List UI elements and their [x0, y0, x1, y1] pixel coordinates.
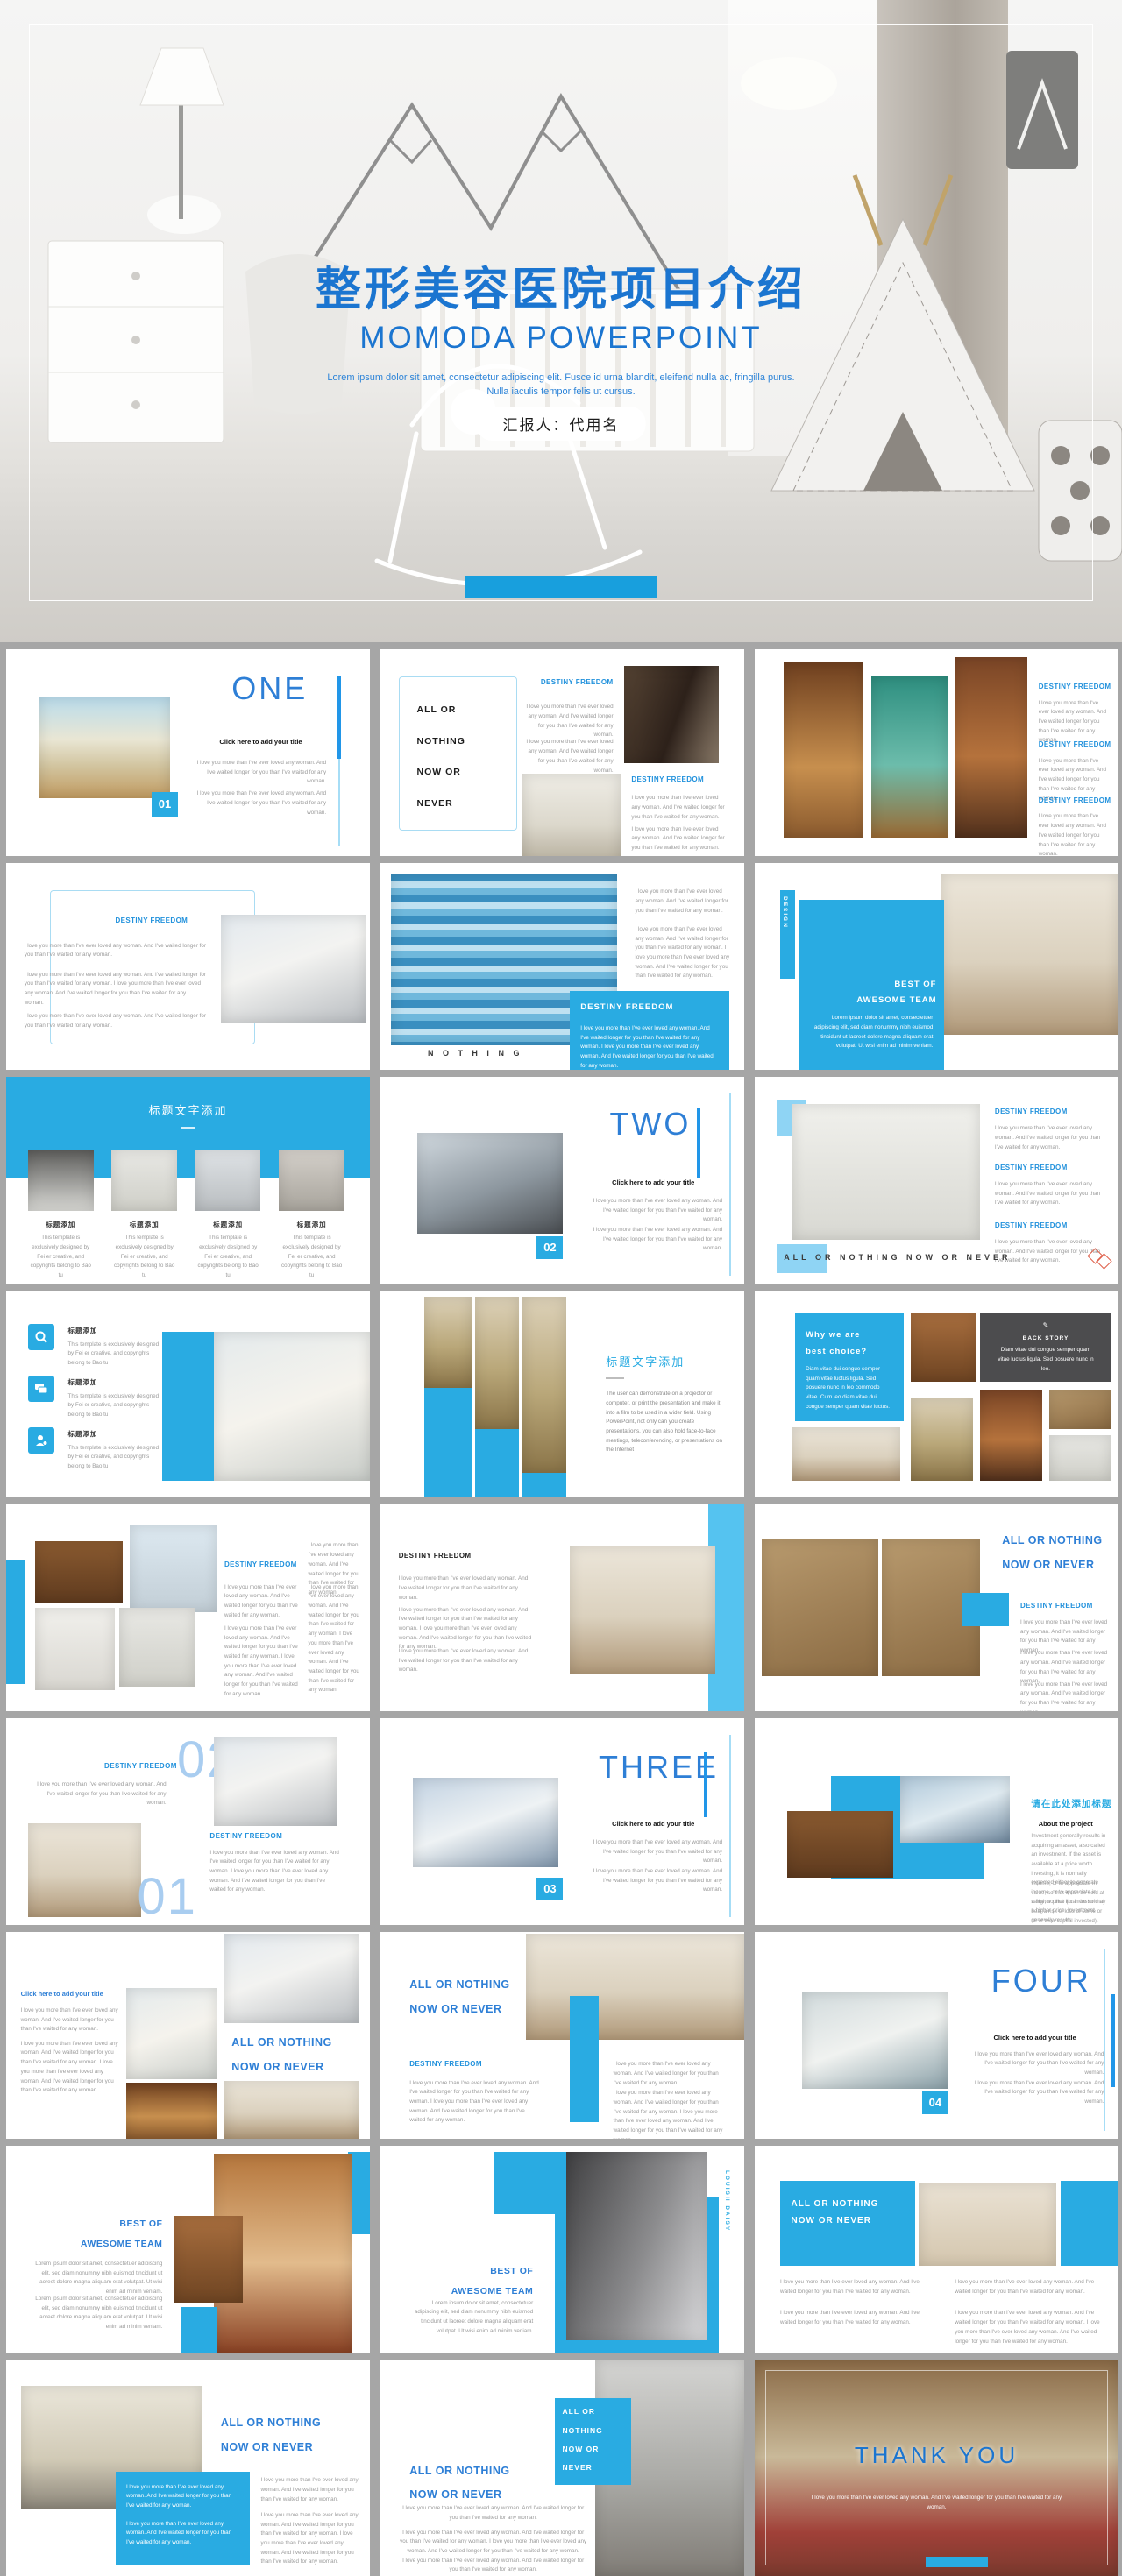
big-number: 01	[137, 1867, 197, 1925]
number-badge: 02	[536, 1236, 563, 1259]
body-text: I love you more than I've ever loved any…	[209, 1849, 340, 1896]
photo	[224, 2081, 359, 2139]
slide-24[interactable]: ALL OR NOTHINGNOW OR NEVER I love you mo…	[755, 2146, 1118, 2353]
body-text: I love you more than I've ever loved any…	[399, 1647, 537, 1675]
photo	[221, 915, 366, 1023]
photo	[126, 1988, 217, 2079]
body-text: I love you more than I've ever loved any…	[25, 942, 207, 960]
body-text: Income, or to appreciate in value, so th…	[1031, 1879, 1107, 1925]
tile-text: Diam vitae dui congue semper quam vitae …	[996, 1346, 1096, 1374]
slogan-line: ALL OR NOTHING	[231, 2036, 331, 2049]
slide-05[interactable]: I love you more than I've ever loved any…	[380, 863, 744, 1070]
photo	[214, 1332, 370, 1481]
vertical-text: DESIGN	[782, 896, 788, 929]
slide-17[interactable]: 03 THREE Click here to add your title I …	[380, 1718, 744, 1925]
slide-11[interactable]: 标题文字添加 The user can demonstrate on a pro…	[380, 1291, 744, 1497]
body-text: I love you more than I've ever loved any…	[399, 2529, 588, 2557]
heading-line: best choice?	[806, 1347, 867, 1356]
heading: DESTINY FREEDOM	[631, 775, 704, 783]
body-text: I love you more than I've ever loved any…	[399, 2557, 588, 2575]
photo	[792, 1104, 981, 1241]
body-text: I love you more than I've ever loved any…	[261, 2476, 359, 2504]
item-title: 标题添加	[68, 1377, 98, 1387]
photo	[279, 1150, 344, 1212]
photo	[35, 1608, 115, 1690]
slide-03[interactable]: DESTINY FREEDOM I love you more than I'v…	[755, 649, 1118, 856]
photo	[424, 1297, 472, 1388]
accent-rect	[962, 1593, 1010, 1626]
back-story-tile: ✎ BACK STORY Diam vitae dui congue sempe…	[980, 1313, 1111, 1382]
slogan-line: ALL OR NOTHING	[221, 2417, 321, 2429]
body-text: I love you more than I've ever loved any…	[614, 2060, 727, 2088]
body-text: I love you more than I've ever loved any…	[631, 794, 726, 822]
slide-22[interactable]: BEST OFAWESOME TEAM Lorem ipsum dolor si…	[6, 2146, 370, 2353]
slogan: ALL OR NOTHINGNOW OR NEVER	[231, 2031, 331, 2079]
presenter-label: 汇报人：代用名	[477, 407, 646, 441]
body-text: I love you more than I've ever loved any…	[32, 1780, 167, 1808]
photo	[126, 2083, 217, 2139]
photo	[900, 1776, 1010, 1843]
heading: BEST OFAWESOME TEAM	[43, 2214, 163, 2254]
item-text: This template is exclusively designed by…	[68, 1392, 160, 1420]
photo	[39, 697, 169, 798]
slogan-line: NOTHING	[417, 736, 465, 747]
accent-line	[729, 1735, 731, 1917]
thank-you-title: THANK YOU	[755, 2442, 1118, 2469]
slogan-line: NOW OR NEVER	[409, 2488, 501, 2501]
body-text: I love you more than I've ever loved any…	[409, 2079, 540, 2127]
photo	[787, 1811, 892, 1878]
heading-line: AWESOME TEAM	[856, 995, 936, 1005]
panel-heading: BEST OFAWESOME TEAM	[806, 977, 936, 1008]
photo	[526, 1934, 744, 2039]
item-text: This template is exclusively designed by…	[68, 1444, 160, 1472]
heading-line: BEST OF	[119, 2219, 162, 2229]
photo	[624, 666, 719, 763]
accent-line	[729, 1093, 731, 1276]
accent-rect	[424, 1388, 472, 1497]
slide-10[interactable]: 标题添加 This template is exclusively design…	[6, 1291, 370, 1497]
tile-heading: BACK STORY	[980, 1335, 1111, 1341]
body-text: I love you more than I've ever loved any…	[21, 2040, 123, 2096]
accent-bar	[704, 1752, 707, 1818]
heading-line: BEST OF	[894, 980, 936, 989]
body-text: Lorem ipsum dolor sit amet, consectetuer…	[409, 2299, 533, 2337]
accent-bar	[337, 676, 341, 759]
accent-rect	[522, 1473, 566, 1497]
photo	[195, 1150, 261, 1212]
photo	[28, 1150, 94, 1212]
slogan-spaced: ALL OR NOTHING NOW OR NEVER	[784, 1253, 1011, 1262]
heading-line: AWESOME TEAM	[81, 2239, 163, 2249]
slogan-line: NOW OR	[563, 2445, 600, 2453]
body-text: I love you more than I've ever loved any…	[224, 1624, 301, 1700]
accent-line	[338, 759, 340, 846]
item-title: 标题添加	[68, 1429, 98, 1439]
body-text: Lorem ipsum dolor sit amet, consectetuer…	[32, 2295, 162, 2332]
slide-14[interactable]: DESTINY FREEDOM I love you more than I'v…	[380, 1504, 744, 1711]
cover-slide[interactable]: 整形美容医院项目介绍 MOMODA POWERPOINT Lorem ipsum…	[0, 0, 1122, 642]
body-text: I love you more than I've ever loved any…	[636, 925, 730, 981]
caption-text: This template is exclusively designed by…	[279, 1234, 344, 1281]
photo	[35, 1541, 123, 1603]
slide-title: Click here to add your title	[580, 1178, 726, 1186]
body-text: I love you more than I've ever loved any…	[1020, 1681, 1108, 1711]
photo	[111, 1150, 177, 1212]
heading: DESTINY FREEDOM	[1039, 683, 1111, 690]
slide-title: Click here to add your title	[21, 1990, 103, 1998]
slogan-line: ALL OR	[563, 2407, 595, 2416]
accent-bar	[926, 2557, 988, 2567]
heading-line: NOW OR NEVER	[792, 2216, 871, 2226]
title-dash	[181, 1127, 195, 1129]
slide-15[interactable]: ALL OR NOTHINGNOW OR NEVER DESTINY FREED…	[755, 1504, 1118, 1711]
accent-bar	[1111, 1994, 1115, 2087]
body-text: I love you more than I've ever loved any…	[584, 1867, 722, 1895]
heading: DESTINY FREEDOM	[995, 1108, 1068, 1115]
caption-title: 标题添加	[195, 1220, 261, 1229]
photo	[941, 874, 1118, 1035]
hero-description: Lorem ipsum dolor sit amet, consectetur …	[316, 372, 806, 400]
photo	[762, 1539, 878, 1676]
accent-bar	[697, 1108, 700, 1178]
body-text: I love you more than I've ever loved any…	[188, 789, 327, 817]
slide-08[interactable]: 02 TWO Click here to add your title I lo…	[380, 1077, 744, 1284]
accent-rect	[162, 1332, 217, 1481]
title-dash	[606, 1377, 624, 1379]
body-text: I love you more than I've ever loved any…	[399, 2504, 588, 2523]
body-text: I love you more than I've ever loved any…	[584, 1226, 722, 1254]
photo	[784, 662, 863, 838]
thank-you-text: I love you more than I've ever loved any…	[806, 2494, 1068, 2512]
sub-heading: About the project	[1039, 1820, 1093, 1828]
body-text: I love you more than I've ever loved any…	[631, 825, 726, 853]
slide-19[interactable]: Click here to add your title I love you …	[6, 1932, 370, 2139]
body-text: I love you more than I've ever loved any…	[399, 1606, 537, 1653]
body-text: I love you more than I've ever loved any…	[995, 1124, 1104, 1152]
heading: DESTINY FREEDOM	[1039, 740, 1111, 748]
slide-title: 标题文字添加	[606, 1353, 685, 1369]
heading: DESTINY FREEDOM	[224, 1560, 297, 1568]
photo	[130, 1525, 217, 1612]
photo	[413, 1778, 558, 1866]
panel-heading: Why we arebest choice?	[806, 1327, 867, 1359]
section-number: FOUR	[991, 1963, 1091, 1999]
slide-18[interactable]: 请在此处添加标题 About the project Investment ge…	[755, 1718, 1118, 1925]
photo	[955, 657, 1027, 837]
hero-subtitle: MOMODA POWERPOINT	[0, 321, 1122, 356]
overlay-heading: DESTINY FREEDOM	[580, 1000, 673, 1016]
slogan-line: NOW OR NEVER	[231, 2061, 323, 2073]
heading: DESTINY FREEDOM	[533, 678, 613, 686]
slogan-line: ALL OR NOTHING	[409, 2465, 509, 2477]
slide-25[interactable]: ALL OR NOTHINGNOW OR NEVER I love you mo…	[6, 2360, 370, 2576]
photo	[919, 2183, 1057, 2265]
body-text: The user can demonstrate on a projector …	[606, 1390, 729, 1455]
body-text: I love you more than I've ever loved any…	[526, 703, 614, 740]
photo	[566, 2152, 708, 2340]
slide-09[interactable]: DESTINY FREEDOM I love you more than I'v…	[755, 1077, 1118, 1284]
slide-02[interactable]: ALL ORNOTHINGNOW ORNEVER DESTINY FREEDOM…	[380, 649, 744, 856]
slide-26[interactable]: ALL ORNOTHINGNOW ORNEVER ALL OR NOTHINGN…	[380, 2360, 744, 2576]
photo	[522, 1297, 566, 1473]
body-text: I love you more than I've ever loved any…	[780, 2278, 933, 2296]
body-text: I love you more than I've ever loved any…	[526, 738, 614, 775]
vertical-text: LOUISH DAISY	[724, 2170, 730, 2232]
slogan-line: NOW OR NEVER	[221, 2441, 313, 2453]
slide-12[interactable]: Why we arebest choice? Diam vitae dui co…	[755, 1291, 1118, 1497]
section-number: ONE	[231, 670, 308, 707]
slogan: ALL OR NOTHINGNOW OR NEVER	[1002, 1529, 1102, 1577]
number-badge: 01	[152, 792, 178, 817]
slogan-line: NOTHING	[563, 2426, 603, 2435]
heading-line: ALL OR NOTHING	[792, 2199, 879, 2209]
body-text: I love you more than I've ever loved any…	[995, 1238, 1104, 1266]
slide-13[interactable]: DESTINY FREEDOM I love you more than I'v…	[6, 1504, 370, 1711]
accent-line	[1104, 1949, 1105, 2131]
photo	[214, 1737, 337, 1825]
search-icon	[28, 1324, 54, 1350]
slogan-line: NOW OR NEVER	[409, 2003, 501, 2015]
body-text: I love you more than I've ever loved any…	[1039, 812, 1108, 856]
caption-title: 标题添加	[111, 1220, 177, 1229]
slogan-stacked: ALL ORNOTHINGNOW ORNEVER	[417, 695, 465, 820]
number-badge: 04	[922, 2091, 948, 2114]
heading: DESTINY FREEDOM	[104, 1762, 177, 1770]
slide-04[interactable]: DESTINY FREEDOM I love you more than I'v…	[6, 863, 370, 1070]
heading: DESTINY FREEDOM	[116, 916, 188, 924]
accent-rect	[1061, 2181, 1118, 2266]
photo	[522, 774, 621, 856]
photo	[570, 1546, 715, 1674]
slogan-line: NEVER	[563, 2463, 593, 2472]
overlay-slogan: ALL ORNOTHINGNOW ORNEVER	[563, 2403, 603, 2477]
heading: DESTINY FREEDOM	[995, 1164, 1068, 1171]
slogan-line: ALL OR	[417, 704, 457, 715]
slide-16[interactable]: 02 DESTINY FREEDOM I love you more than …	[6, 1718, 370, 1925]
body-text: I love you more than I've ever loved any…	[1039, 699, 1108, 747]
slogan: ALL OR NOTHINGNOW OR NEVER	[409, 2459, 509, 2508]
caption-text: This template is exclusively designed by…	[195, 1234, 261, 1281]
slide-title: Click here to add your title	[188, 738, 334, 746]
body-text: I love you more than I've ever loved any…	[188, 759, 327, 787]
photo	[1049, 1390, 1111, 1429]
photo	[802, 1992, 948, 2089]
heading: BEST OFAWESOME TEAM	[417, 2261, 534, 2302]
photo	[911, 1398, 973, 1481]
slide-title: 标题文字添加	[6, 1101, 370, 1118]
photo	[224, 1934, 359, 2022]
caption-title: 标题添加	[279, 1220, 344, 1229]
accent-rect	[570, 1996, 599, 2122]
photo	[980, 1390, 1042, 1481]
photo	[871, 676, 948, 838]
chat-icon	[28, 1376, 54, 1402]
heading-line: AWESOME TEAM	[451, 2286, 534, 2296]
slogan-line: NOW OR NEVER	[1002, 1559, 1094, 1571]
photo	[28, 1823, 141, 1916]
body-text: I love you more than I've ever loved any…	[224, 1583, 301, 1621]
accent-strip	[6, 1560, 25, 1685]
body-text: I love you more than I've ever loved any…	[995, 1180, 1104, 1208]
caption-text: This template is exclusively designed by…	[28, 1234, 94, 1281]
heading: DESTINY FREEDOM	[1039, 796, 1111, 804]
hero-accent-bar	[465, 576, 657, 598]
slogan-line: ALL OR NOTHING	[409, 1978, 509, 1991]
overlay-text: I love you more than I've ever loved any…	[126, 2483, 239, 2511]
body-text: I love you more than I've ever loved any…	[21, 2006, 123, 2035]
slogan-line: NOW OR	[417, 767, 461, 777]
slide-title: Click here to add your title	[580, 1820, 726, 1828]
item-title: 标题添加	[68, 1326, 98, 1335]
slide-06[interactable]: DESIGN BEST OFAWESOME TEAM Lorem ipsum d…	[755, 863, 1118, 1070]
body-text: I love you more than I've ever loved any…	[261, 2511, 359, 2567]
overlay-text: I love you more than I've ever loved any…	[580, 1024, 719, 1070]
section-number: THREE	[599, 1749, 719, 1786]
accent-rect	[181, 2307, 217, 2353]
section-number: TWO	[609, 1106, 691, 1143]
photo	[475, 1297, 519, 1429]
body-text: I love you more than I've ever loved any…	[584, 1197, 722, 1225]
heading-line: Why we are	[806, 1330, 860, 1340]
panel-text: Diam vitae dui congue semper quam vitae …	[806, 1365, 893, 1412]
slide-07[interactable]: 标题文字添加 标题添加 标题添加 标题添加 标题添加 This template…	[6, 1077, 370, 1284]
slogan: ALL OR NOTHINGNOW OR NEVER	[409, 1973, 509, 2021]
body-text: I love you more than I've ever loved any…	[308, 1583, 362, 1695]
body-text: Lorem ipsum dolor sit amet, consectetuer…	[32, 2260, 162, 2297]
photo	[792, 1427, 901, 1481]
slogan-spaced: N O T H I N G	[428, 1049, 523, 1058]
slogan: ALL OR NOTHINGNOW OR NEVER	[221, 2411, 321, 2459]
number-badge: 03	[536, 1878, 563, 1900]
body-text: I love you more than I've ever loved any…	[966, 2079, 1104, 2107]
heading: DESTINY FREEDOM	[209, 1832, 282, 1840]
body-text: I love you more than I've ever loved any…	[780, 2309, 933, 2327]
heading: DESTINY FREEDOM	[409, 2060, 482, 2068]
panel-text: Lorem ipsum dolor sit amet, consectetuer…	[809, 1014, 933, 1051]
slide-01[interactable]: 01 ONE Click here to add your title I lo…	[6, 649, 370, 856]
overlay-text: I love you more than I've ever loved any…	[126, 2520, 239, 2548]
slogan-line: NEVER	[417, 798, 453, 809]
panel-heading: ALL OR NOTHINGNOW OR NEVER	[792, 2196, 879, 2229]
slide-21[interactable]: 04 FOUR Click here to add your title I l…	[755, 1932, 1118, 2139]
body-text: I love you more than I've ever loved any…	[399, 1575, 537, 1603]
caption-title: 标题添加	[28, 1220, 94, 1229]
body-text: I love you more than I've ever loved any…	[955, 2278, 1100, 2296]
photo	[174, 2216, 243, 2303]
slide-23[interactable]: LOUISH DAISY BEST OFAWESOME TEAM Lorem i…	[380, 2146, 744, 2353]
caption-text: This template is exclusively designed by…	[111, 1234, 177, 1281]
body-text: I love you more than I've ever loved any…	[614, 2089, 727, 2139]
slide-27[interactable]: THANK YOU I love you more than I've ever…	[755, 2360, 1118, 2576]
user-icon	[28, 1427, 54, 1454]
photo	[1049, 1435, 1111, 1481]
body-text: I love you more than I've ever loved any…	[955, 2309, 1100, 2346]
accent-rect	[475, 1429, 519, 1497]
slide-title: 请在此处添加标题	[1031, 1797, 1111, 1810]
body-text: I love you more than I've ever loved any…	[25, 1012, 207, 1030]
item-text: This template is exclusively designed by…	[68, 1341, 160, 1369]
photo	[417, 1133, 563, 1235]
heading-line: BEST OF	[490, 2266, 533, 2276]
body-text: I love you more than I've ever loved any…	[584, 1838, 722, 1866]
pencil-icon: ✎	[980, 1321, 1111, 1329]
slogan-line: ALL OR NOTHING	[1002, 1534, 1102, 1546]
body-text: I love you more than I've ever loved any…	[25, 971, 207, 1008]
page-title: 整形美容医院项目介绍	[0, 252, 1122, 318]
slide-title: Click here to add your title	[966, 2034, 1104, 2042]
photo	[119, 1608, 195, 1687]
heading: DESTINY FREEDOM	[399, 1552, 472, 1560]
body-text: I love you more than I've ever loved any…	[966, 2050, 1104, 2078]
body-text: I love you more than I've ever loved any…	[636, 888, 730, 916]
heading: DESTINY FREEDOM	[995, 1221, 1068, 1229]
photo	[911, 1313, 976, 1382]
slide-20[interactable]: ALL OR NOTHINGNOW OR NEVER DESTINY FREED…	[380, 1932, 744, 2139]
heading: DESTINY FREEDOM	[1020, 1602, 1093, 1610]
